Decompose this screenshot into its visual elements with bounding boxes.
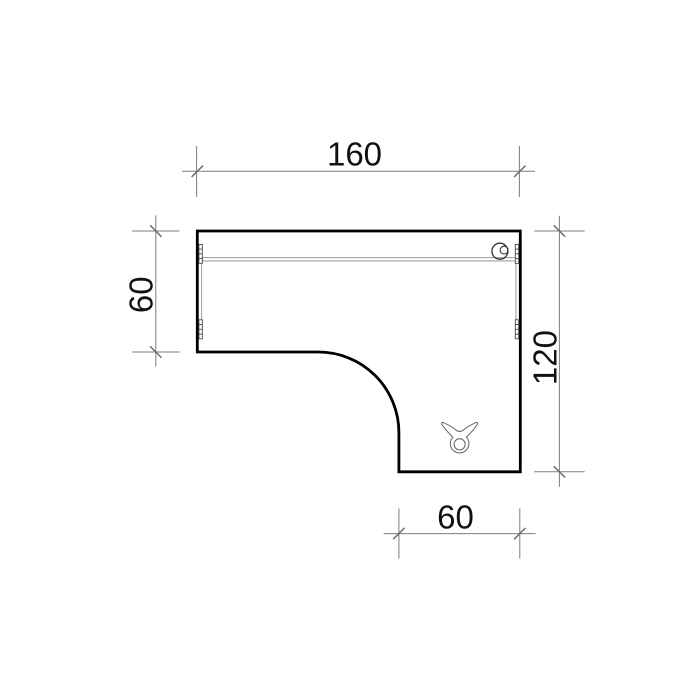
- svg-text:120: 120: [527, 330, 564, 385]
- svg-text:60: 60: [123, 276, 160, 313]
- svg-text:60: 60: [437, 498, 474, 535]
- svg-text:160: 160: [327, 136, 382, 173]
